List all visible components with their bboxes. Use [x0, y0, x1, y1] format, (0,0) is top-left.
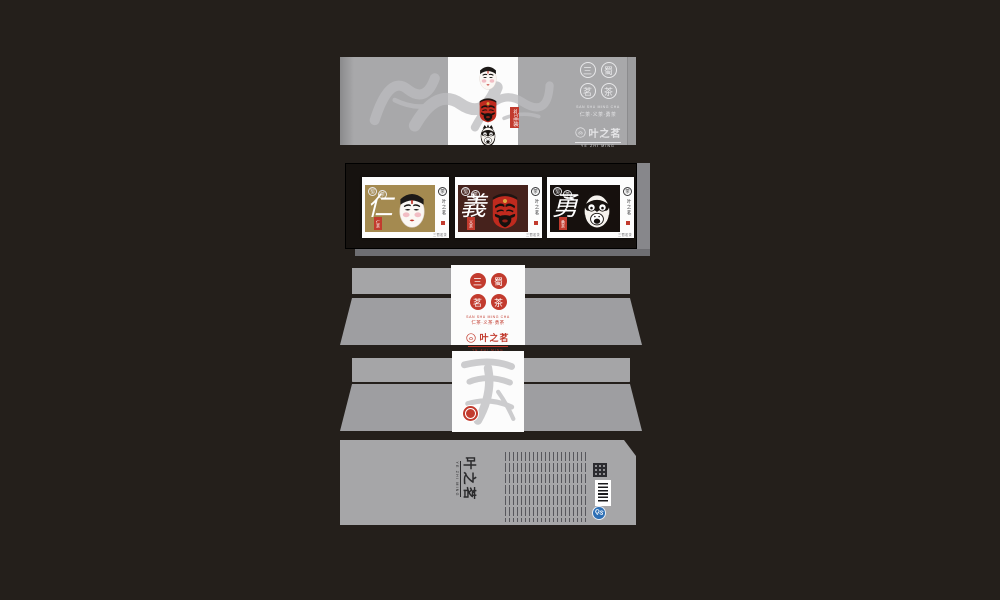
- tagline-english: SAN SHU MING CHA: [562, 105, 634, 109]
- virtue-seal: 勇茶: [559, 217, 567, 230]
- black-hero-mask-icon: [475, 123, 501, 147]
- brand-name-en: YE ZHI MING: [575, 142, 621, 148]
- tea-card-ren: 蜀 茶 仁 仁茶 茶 叶之茗 三蜀茗茶: [362, 177, 449, 238]
- fold-notch-right: [629, 292, 636, 299]
- qr-code: [593, 463, 607, 477]
- box-lid-panel: 礼品装 三 蜀 茗 茶 SAN SHU MING CHA 仁茶·义茶·勇茶 叶之…: [340, 57, 636, 145]
- tagline-chinese: 仁茶·义茶·勇茶: [562, 111, 634, 118]
- tray-side-edge: [637, 163, 650, 249]
- seal-inner-ring: [465, 408, 476, 419]
- card-tray-panel: 蜀 茶 仁 仁茶 茶 叶之茗 三蜀茗茶 蜀 茶 義 义茶 茶 叶之茗 三蜀茗茶: [345, 161, 650, 256]
- virtue-seal: 仁茶: [374, 217, 382, 230]
- box-front-panel: 三 蜀 茗 茶 SAN SHU MING CHA 仁茶·义茶·勇茶 叶之茗 YE…: [340, 265, 642, 345]
- virtue-seal: 义茶: [467, 217, 475, 230]
- logo-seal-1: 三: [470, 273, 486, 289]
- design-board: 礼品装 三 蜀 茗 茶 SAN SHU MING CHA 仁茶·义茶·勇茶 叶之…: [0, 0, 1000, 600]
- logo-seal-1: 三: [580, 62, 596, 78]
- bottom-brand-lockup: 叶之茗 YE ZHI MING: [455, 451, 481, 507]
- brand-mark-icon: [575, 127, 586, 138]
- qs-certification-icon: QS: [590, 504, 608, 522]
- box-back-panel: [340, 351, 642, 431]
- card-art: 蜀 茶 義 义茶: [458, 185, 528, 232]
- white-hero-face-icon: [391, 187, 433, 231]
- tray-bottom-edge: [355, 249, 650, 256]
- front-label-strip: 三 蜀 茗 茶 SAN SHU MING CHA 仁茶·义茶·勇茶 叶之茗 YE…: [451, 265, 525, 345]
- tagline-english: SAN SHU MING CHA: [451, 315, 525, 319]
- brand-lockup: 叶之茗: [451, 331, 525, 344]
- product-fine-print: [505, 452, 588, 522]
- barcode-bars: [598, 483, 608, 503]
- side-brand-text: 叶之茗: [440, 199, 446, 216]
- red-seal-stamp: [462, 405, 479, 422]
- logo-seal-4: 茶: [491, 294, 507, 310]
- side-red-square: [534, 221, 538, 225]
- tagline-chinese: 仁茶·义茶·勇茶: [451, 320, 525, 326]
- logo-seal-grid-red: 三 蜀 茗 茶: [451, 273, 525, 310]
- red-hero-mask-icon: [473, 94, 503, 124]
- logo-seal-grid: 三 蜀 茗 茶: [562, 62, 634, 99]
- logo-seal-4: 茶: [601, 83, 617, 99]
- card-art: 蜀 茶 勇 勇茶: [550, 185, 620, 232]
- side-red-square: [441, 221, 445, 225]
- red-hero-face-icon: [484, 187, 526, 231]
- lid-left-edge: [340, 57, 354, 145]
- back-label-strip: [452, 351, 524, 432]
- brand-name-en: YE ZHI MING: [456, 461, 462, 496]
- card-art: 蜀 茶 仁 仁茶: [365, 185, 435, 232]
- tea-card-yi: 蜀 茶 義 义茶 茶 叶之茗 三蜀茗茶: [455, 177, 542, 238]
- side-seal: 茶: [531, 187, 540, 196]
- brand-logo-block: 三 蜀 茗 茶 SAN SHU MING CHA 仁茶·义茶·勇茶 叶之茗 YE…: [562, 62, 634, 142]
- brand-name: 叶之茗: [462, 456, 481, 501]
- card-micro-text: 三蜀茗茶: [526, 232, 540, 237]
- side-brand-text: 叶之茗: [533, 199, 539, 216]
- side-seal: 茶: [438, 187, 447, 196]
- box-bottom-panel: 叶之茗 YE ZHI MING QS: [340, 440, 636, 525]
- card-micro-text: 三蜀茗茶: [618, 232, 632, 237]
- gift-tag: 礼品装: [510, 107, 519, 128]
- logo-seal-2: 蜀: [491, 273, 507, 289]
- logo-seal-2: 蜀: [601, 62, 617, 78]
- logo-seal-3: 茗: [580, 83, 596, 99]
- tea-card-yong: 蜀 茶 勇 勇茶 茶 叶之茗 三蜀茗茶: [547, 177, 634, 238]
- black-hero-face-icon: [576, 187, 618, 231]
- logo-seal-3: 茗: [470, 294, 486, 310]
- side-seal: 茶: [623, 187, 632, 196]
- side-red-square: [626, 221, 630, 225]
- brand-name: 叶之茗: [589, 125, 622, 140]
- white-hero-mask-icon: [473, 62, 503, 92]
- side-brand-text: 叶之茗: [625, 199, 631, 216]
- brand-mark-icon: [466, 333, 476, 343]
- brand-name: 叶之茗: [479, 331, 509, 344]
- card-micro-text: 三蜀茗茶: [433, 232, 447, 237]
- barcode: [595, 480, 611, 506]
- brand-lockup: 叶之茗: [562, 125, 634, 140]
